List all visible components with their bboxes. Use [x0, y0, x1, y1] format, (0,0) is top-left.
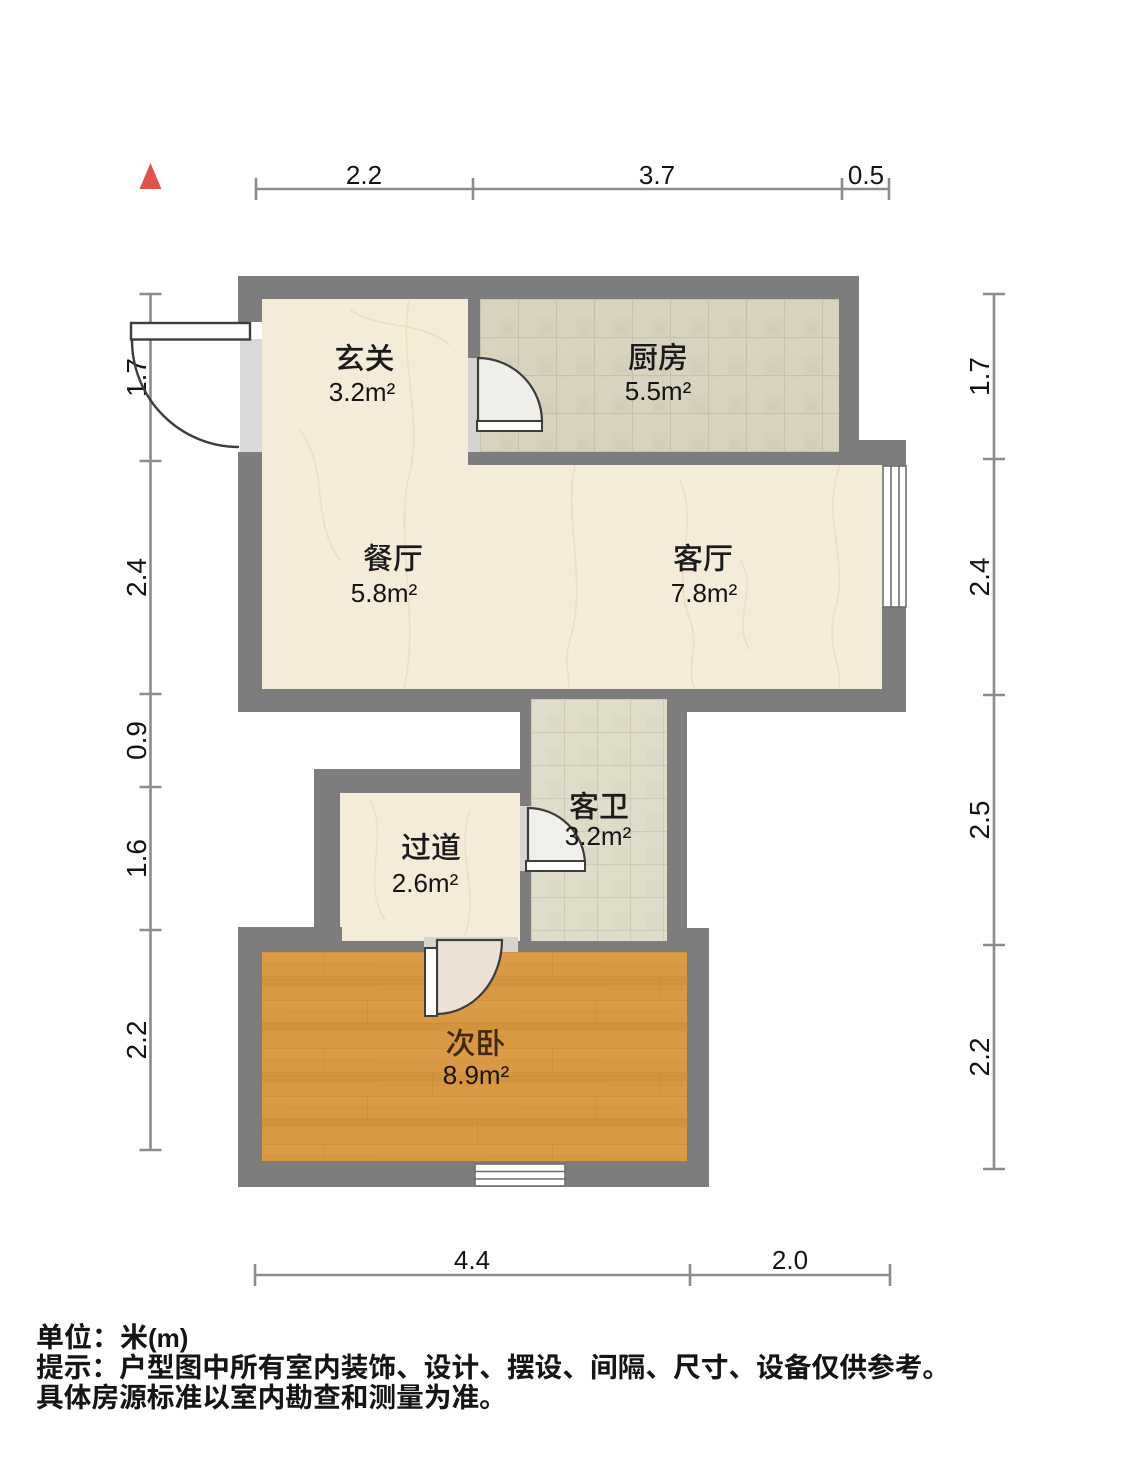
svg-text:2.4: 2.4 [964, 558, 995, 597]
svg-text:2.4: 2.4 [121, 558, 152, 597]
svg-text:7.8m²: 7.8m² [671, 578, 738, 608]
svg-text:8.9m²: 8.9m² [443, 1060, 510, 1090]
svg-text:0.5: 0.5 [848, 160, 884, 190]
svg-text:2.2: 2.2 [121, 1021, 152, 1060]
svg-text:1.7: 1.7 [121, 358, 152, 397]
svg-text:1.6: 1.6 [121, 839, 152, 878]
svg-text:2.6m²: 2.6m² [392, 868, 459, 898]
svg-text:2.2: 2.2 [964, 1038, 995, 1077]
svg-text:3.2m²: 3.2m² [565, 821, 632, 851]
svg-text:2.0: 2.0 [772, 1245, 808, 1275]
svg-text:3.7: 3.7 [639, 160, 675, 190]
svg-text:1.7: 1.7 [964, 357, 995, 396]
svg-text:4.4: 4.4 [454, 1245, 490, 1275]
svg-text:0.9: 0.9 [121, 721, 152, 760]
svg-text:2.2: 2.2 [346, 160, 382, 190]
svg-text:5.8m²: 5.8m² [351, 578, 418, 608]
svg-text:3.2m²: 3.2m² [329, 377, 396, 407]
svg-text:5.5m²: 5.5m² [625, 376, 692, 406]
svg-text:(m): (m) [148, 1323, 188, 1353]
svg-text:2.5: 2.5 [964, 801, 995, 840]
